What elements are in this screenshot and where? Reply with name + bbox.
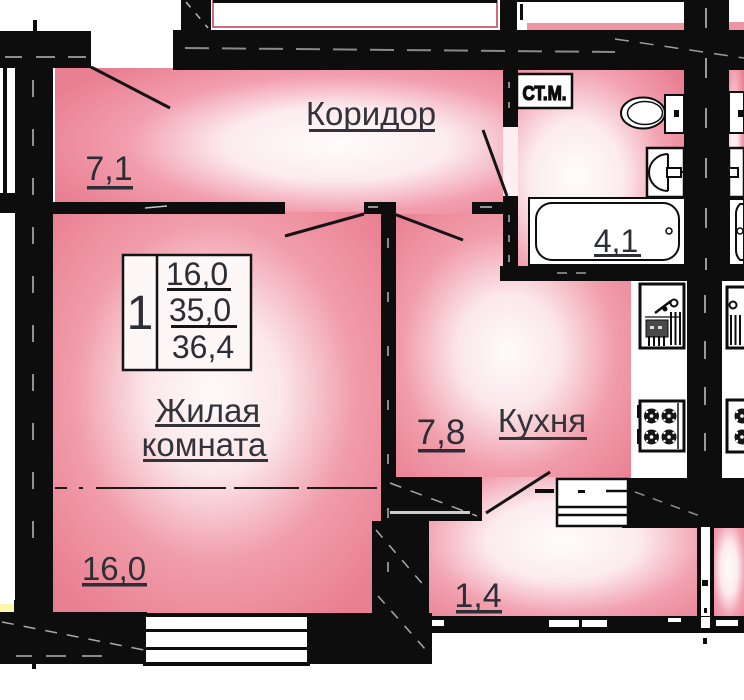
svg-text:Кухня: Кухня [498, 402, 586, 439]
svg-text:комната: комната [142, 426, 267, 463]
svg-text:4,1: 4,1 [594, 223, 638, 259]
svg-text:Коридор: Коридор [306, 95, 436, 132]
svg-text:7,1: 7,1 [85, 150, 132, 188]
svg-text:16,0: 16,0 [82, 550, 146, 587]
svg-text:7,8: 7,8 [417, 413, 466, 452]
svg-text:36,4: 36,4 [172, 329, 234, 365]
svg-text:1,4: 1,4 [454, 577, 501, 615]
svg-text:СТ.М.: СТ.М. [523, 83, 567, 105]
svg-text:1: 1 [127, 287, 154, 340]
svg-text:Жилая: Жилая [156, 392, 260, 429]
svg-text:35,0: 35,0 [169, 292, 231, 328]
svg-text:16,0: 16,0 [166, 256, 228, 292]
